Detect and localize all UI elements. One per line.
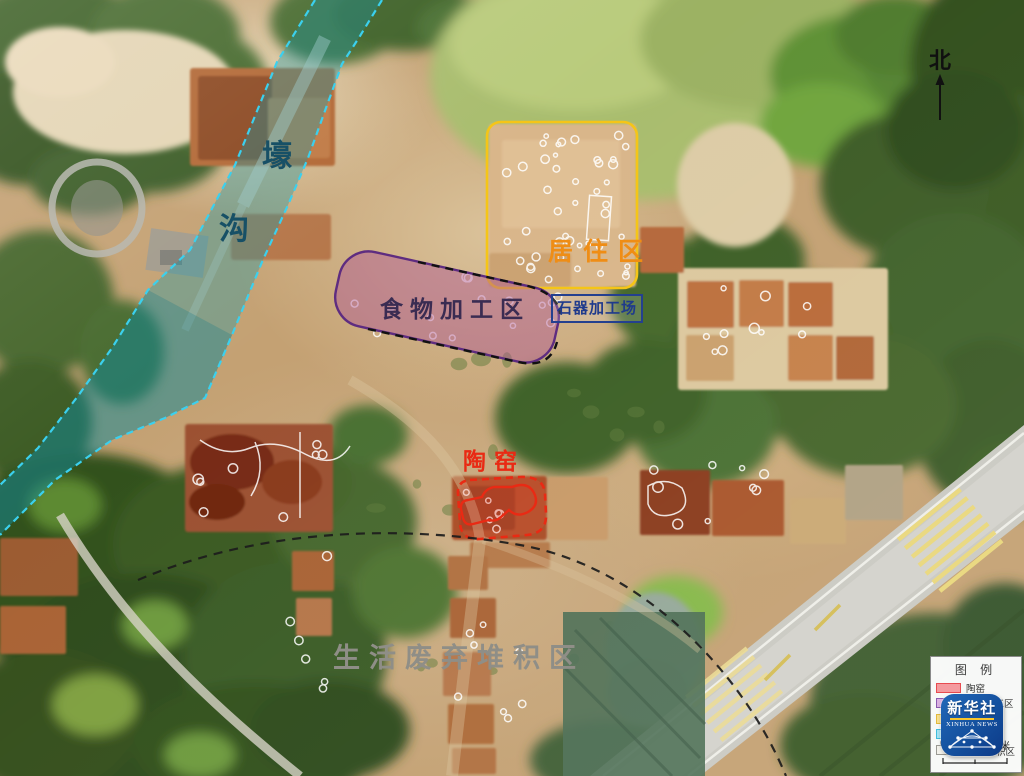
scale-bar-line [939, 757, 1011, 765]
logo-cn-text: 新华社 [947, 701, 997, 716]
pottery-kiln-label: 陶窑 [463, 450, 525, 473]
moat-label-char1: 壕 [262, 142, 292, 172]
legend-title: 图 例 [936, 661, 1016, 678]
north-arrow-icon [933, 74, 947, 122]
stone-tool-area-label-box: 石器加工场 [551, 294, 643, 323]
legend-swatch-kiln [936, 683, 961, 693]
waste-accumulation-zone-label: 生活废弃堆积区 [333, 645, 585, 672]
north-label: 北 [920, 50, 960, 72]
aerial-site-photo: 壕 沟 居住区 食物加工区 石器加工场 陶窑 生活废弃堆积区 北 图 例 陶窑 … [0, 0, 1024, 776]
xinhua-news-logo: 新华社 XINHUA NEWS [941, 694, 1003, 756]
north-indicator: 北 [920, 50, 960, 122]
legend-row-kiln: 陶窑 [936, 681, 1016, 694]
moat-label-char2: 沟 [219, 215, 249, 245]
logo-globe-icon [946, 729, 998, 749]
food-processing-zone-label: 食物加工区 [380, 298, 530, 321]
logo-accent-bar [950, 718, 994, 720]
legend-label-kiln: 陶窑 [966, 681, 985, 695]
residential-zone-label: 居住区 [548, 240, 653, 265]
